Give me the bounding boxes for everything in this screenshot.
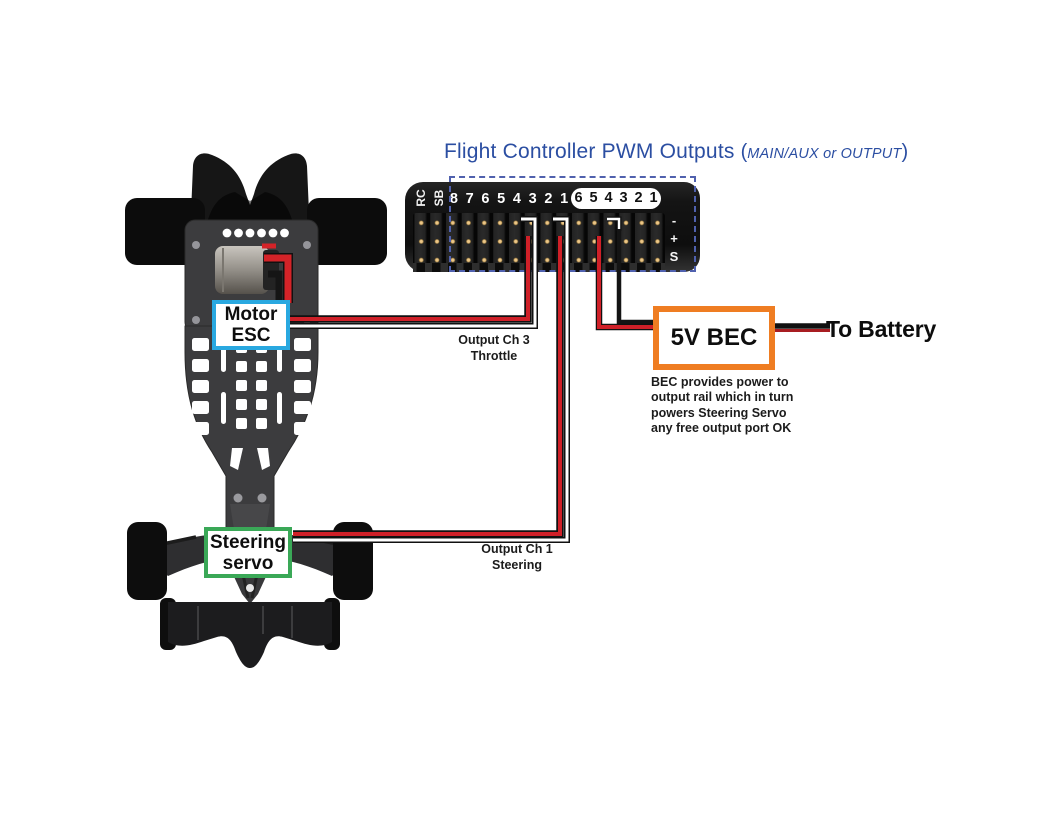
bec-note-line1: BEC provides power to [651,375,851,390]
bec-note-line2: output rail which in turn [651,390,851,405]
to-battery-label: To Battery [826,316,936,343]
motor-esc-line1: Motor [225,304,278,325]
steering-servo-box: Steering servo [204,527,292,578]
wiring-overlay [0,0,1056,816]
caption-ch3-line1: Output Ch 3 [432,333,556,349]
bec-note-line3: powers Steering Servo [651,406,851,421]
esc-signal-wire [290,219,535,326]
caption-output-ch3: Output Ch 3 Throttle [432,333,556,364]
caption-ch1-line2: Steering [455,558,579,574]
bec-label: 5V BEC [671,325,758,351]
bec-ground-wire [607,219,656,322]
steering-servo-line1: Steering [210,532,286,553]
battery-wire [772,326,830,331]
servo-power-wire [293,236,560,534]
bec-box: 5V BEC [653,306,775,370]
bec-note-line4: any free output port OK [651,421,851,436]
motor-esc-line2: ESC [231,325,270,346]
steering-servo-line2: servo [223,553,274,574]
caption-ch3-line2: Throttle [432,349,556,365]
caption-ch1-line1: Output Ch 1 [455,542,579,558]
caption-output-ch1: Output Ch 1 Steering [455,542,579,573]
diagram-canvas: Flight Controller PWM Outputs(MAIN/AUX o… [0,0,1056,816]
motor-esc-box: Motor ESC [212,300,290,350]
esc-power-wire [290,236,528,319]
bec-note: BEC provides power to output rail which … [651,375,851,436]
bec-power-wire [599,236,656,327]
